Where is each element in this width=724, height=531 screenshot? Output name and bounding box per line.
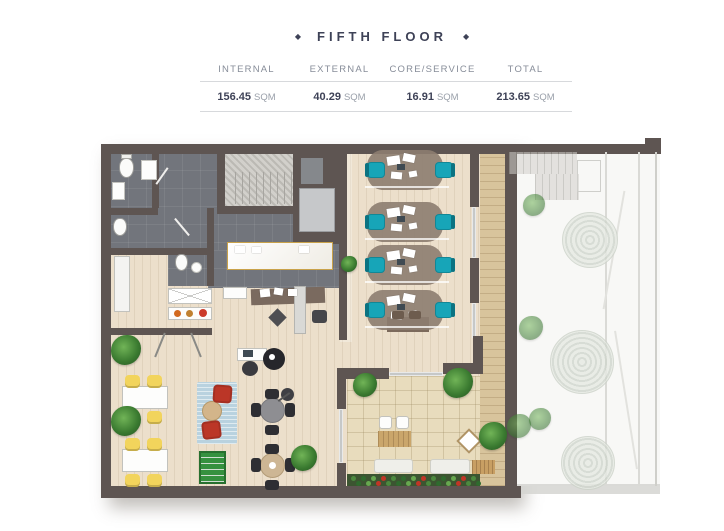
office-chair-teal — [367, 302, 385, 318]
terrace-sliding-door — [389, 372, 443, 376]
flower — [371, 476, 376, 481]
outdoor-chair — [396, 416, 409, 429]
floor-plan-page: { "theme": {"ink": "#3e4257", "mute": "#… — [0, 0, 724, 531]
window-pier — [470, 152, 479, 207]
flower — [446, 481, 451, 486]
meeting-chair-black — [251, 403, 261, 417]
toilet — [113, 218, 127, 236]
office-chair-teal — [367, 257, 385, 273]
flower — [471, 476, 476, 481]
office-chair-teal — [367, 214, 385, 230]
meeting-chair-black — [265, 425, 279, 435]
outdoor-sofa — [374, 459, 413, 473]
elevator-cab — [299, 188, 335, 232]
food-bowl — [199, 309, 207, 317]
office-chair-teal — [435, 214, 453, 230]
wall-stair-left — [217, 152, 225, 212]
paper — [299, 246, 309, 253]
tree — [562, 212, 618, 268]
paper — [235, 246, 245, 253]
meeting-chair-black — [265, 444, 279, 454]
diamond-icon: ◆ — [463, 32, 469, 41]
dining-chair-yellow — [125, 438, 140, 451]
office-chair-teal — [367, 162, 385, 178]
flower — [426, 481, 431, 486]
office-chair-teal — [435, 257, 453, 273]
stair-landing — [577, 160, 601, 192]
flower — [411, 476, 416, 481]
armchair-red — [212, 384, 232, 403]
col-internal-label: INTERNAL — [200, 64, 293, 81]
flower — [351, 476, 356, 481]
flower — [396, 481, 401, 486]
shower — [141, 160, 157, 180]
meeting-chair-black — [251, 458, 261, 472]
flower — [401, 476, 406, 481]
dining-chair-yellow — [147, 438, 162, 451]
dining-table — [122, 449, 168, 472]
flower — [421, 476, 426, 481]
wall-terrace-5 — [337, 463, 346, 488]
toilet-tank — [121, 154, 132, 159]
armchair-red — [201, 420, 222, 440]
area-table: INTERNAL EXTERNAL CORE/SERVICE TOTAL 156… — [200, 64, 572, 112]
flower — [456, 481, 461, 486]
window-pier — [470, 258, 479, 303]
office-chair-teal — [435, 162, 453, 178]
flower — [381, 476, 386, 481]
wall-closet-bottom — [110, 328, 212, 335]
office-chair-teal — [435, 302, 453, 318]
stair-treads — [235, 172, 293, 204]
terrace-glass — [339, 409, 343, 463]
desk-paper — [391, 267, 403, 275]
area-table-header-row: INTERNAL EXTERNAL CORE/SERVICE TOTAL — [200, 64, 572, 81]
outdoor-bench — [472, 460, 495, 474]
desk-paper — [391, 172, 403, 180]
flower — [461, 476, 466, 481]
flower — [431, 476, 436, 481]
pergola-line — [638, 152, 640, 486]
desk-rail — [365, 281, 449, 283]
col-total-label: TOTAL — [479, 64, 572, 81]
dining-chair-yellow — [125, 375, 140, 388]
total-area-value: 213.65SQM — [479, 87, 572, 105]
wall-room-divider — [110, 248, 212, 255]
col-external-label: EXTERNAL — [293, 64, 386, 81]
wall-bottom — [101, 486, 521, 498]
floor-title: FIFTH FLOOR — [317, 29, 447, 44]
outdoor-sofa — [430, 459, 470, 474]
floor-plan — [95, 130, 675, 520]
wardrobe — [114, 256, 130, 312]
side-desk — [223, 287, 247, 299]
wall-right — [505, 150, 517, 498]
flower — [476, 481, 481, 486]
toilet — [175, 254, 188, 271]
flower — [436, 481, 441, 486]
diamond-icon: ◆ — [295, 32, 301, 41]
pergola-line — [605, 152, 607, 486]
desk-rail — [365, 238, 449, 240]
flower — [451, 476, 456, 481]
flower — [416, 481, 421, 486]
desk-laptop — [397, 164, 405, 170]
table-decor — [269, 462, 276, 469]
tree — [550, 330, 614, 394]
flower — [466, 481, 471, 486]
dining-chair-yellow — [147, 375, 162, 388]
sink — [112, 182, 125, 200]
col-core-service-label: CORE/SERVICE — [386, 64, 479, 81]
page-title: ◆FIFTH FLOOR◆ — [40, 28, 724, 46]
wall-top-notch — [645, 138, 661, 154]
paper — [260, 288, 271, 297]
wall-terrace-4 — [337, 379, 346, 409]
wall-bath-divider — [110, 208, 158, 215]
window-glass — [472, 207, 476, 258]
storage-unit — [168, 288, 212, 304]
flower — [386, 481, 391, 486]
dining-chair-yellow — [147, 411, 162, 424]
coffee-table — [202, 401, 222, 421]
laptop — [243, 350, 253, 357]
area-table-value-row: 156.45SQM 40.29SQM 16.91SQM 213.65SQM — [200, 81, 572, 112]
desk-laptop — [397, 259, 405, 265]
courtyard-edge — [655, 152, 657, 486]
desk-laptop — [397, 304, 405, 310]
paper — [252, 247, 261, 253]
wall-left — [101, 144, 111, 498]
internal-area-value: 156.45SQM — [200, 87, 293, 105]
dining-chair-yellow — [125, 474, 140, 487]
meeting-chair-black — [265, 480, 279, 490]
flower — [366, 481, 371, 486]
outdoor-stairs — [509, 152, 577, 174]
desk-rail — [365, 186, 449, 188]
table-decor — [269, 354, 275, 360]
flower — [376, 481, 381, 486]
meeting-table — [260, 398, 285, 423]
flower — [356, 481, 361, 486]
sink — [191, 262, 202, 273]
paper — [274, 287, 284, 295]
food-bowl — [186, 310, 193, 317]
desk-rail — [365, 326, 449, 328]
window-glass — [472, 303, 476, 338]
flower — [406, 481, 411, 486]
core-service-area-value: 16.91SQM — [386, 87, 479, 105]
meeting-chair-brown — [409, 311, 421, 319]
office-chair-black — [242, 361, 258, 376]
meeting-chair-brown — [392, 311, 404, 319]
meeting-chair-black — [285, 403, 295, 417]
outdoor-table — [378, 431, 411, 447]
elevator-shaft — [301, 158, 323, 184]
external-area-value: 40.29SQM — [293, 87, 386, 105]
wc-tile-floor — [168, 250, 212, 286]
flower — [361, 476, 366, 481]
dining-chair-yellow — [147, 474, 162, 487]
wall-wc-right — [207, 208, 214, 286]
desk-paper — [391, 224, 403, 232]
meeting-chair-black — [265, 389, 279, 399]
foosball-table — [199, 451, 226, 484]
desk-chair — [312, 310, 327, 323]
wall-terrace-3 — [473, 336, 483, 374]
flower — [391, 476, 396, 481]
paper — [288, 289, 297, 296]
flower — [441, 476, 446, 481]
food-bowl — [174, 310, 181, 317]
outdoor-chair — [379, 416, 392, 429]
toilet — [119, 158, 134, 178]
desk-laptop — [397, 216, 405, 222]
tree — [561, 436, 615, 490]
